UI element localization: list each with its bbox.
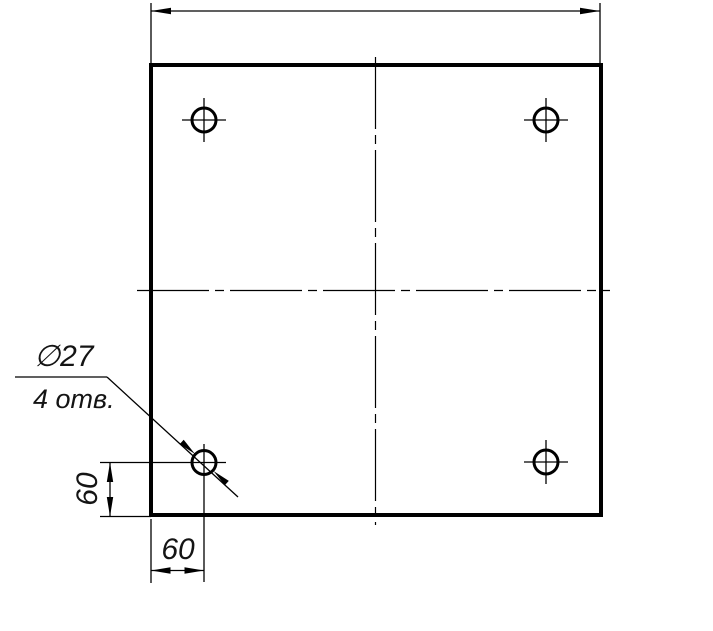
hole-diameter-label: ∅27 — [34, 340, 95, 373]
left-dim-arrow-up — [107, 463, 113, 483]
hole-count-label: 4 отв. — [33, 384, 115, 414]
bottom-dim-arrow-left — [151, 567, 171, 573]
drawing-page: 60 60 ∅27 4 отв. — [0, 0, 713, 631]
bottom-dim-arrow-right — [185, 567, 205, 573]
top-dim-arrow-right — [580, 8, 600, 14]
bottom-dim-value: 60 — [161, 533, 195, 566]
top-dim-arrow-left — [151, 8, 171, 14]
left-dim-arrow-down — [107, 497, 113, 517]
left-dim-value: 60 — [71, 472, 104, 506]
drawing-canvas: 60 60 ∅27 4 отв. — [0, 0, 713, 631]
